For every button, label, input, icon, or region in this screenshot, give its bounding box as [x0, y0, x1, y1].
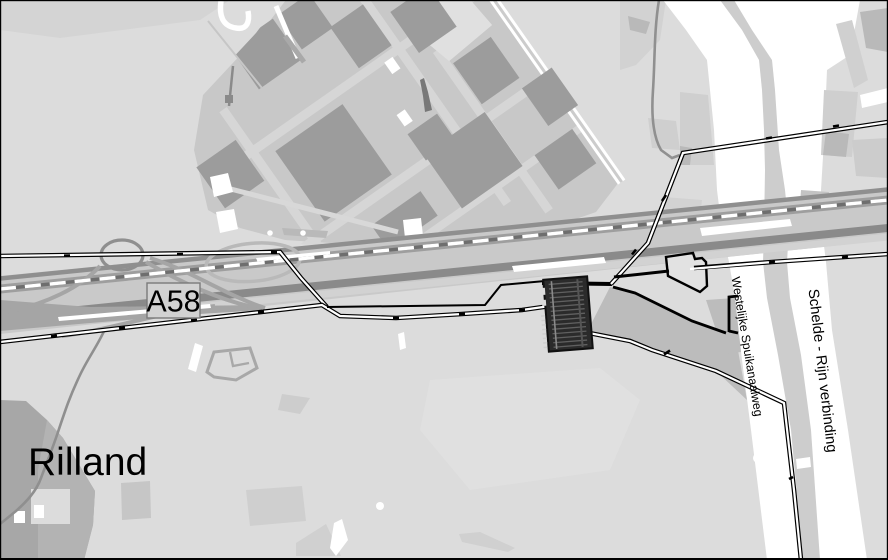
svg-text:Rilland: Rilland: [28, 441, 147, 484]
svg-text:A58: A58: [146, 285, 200, 319]
